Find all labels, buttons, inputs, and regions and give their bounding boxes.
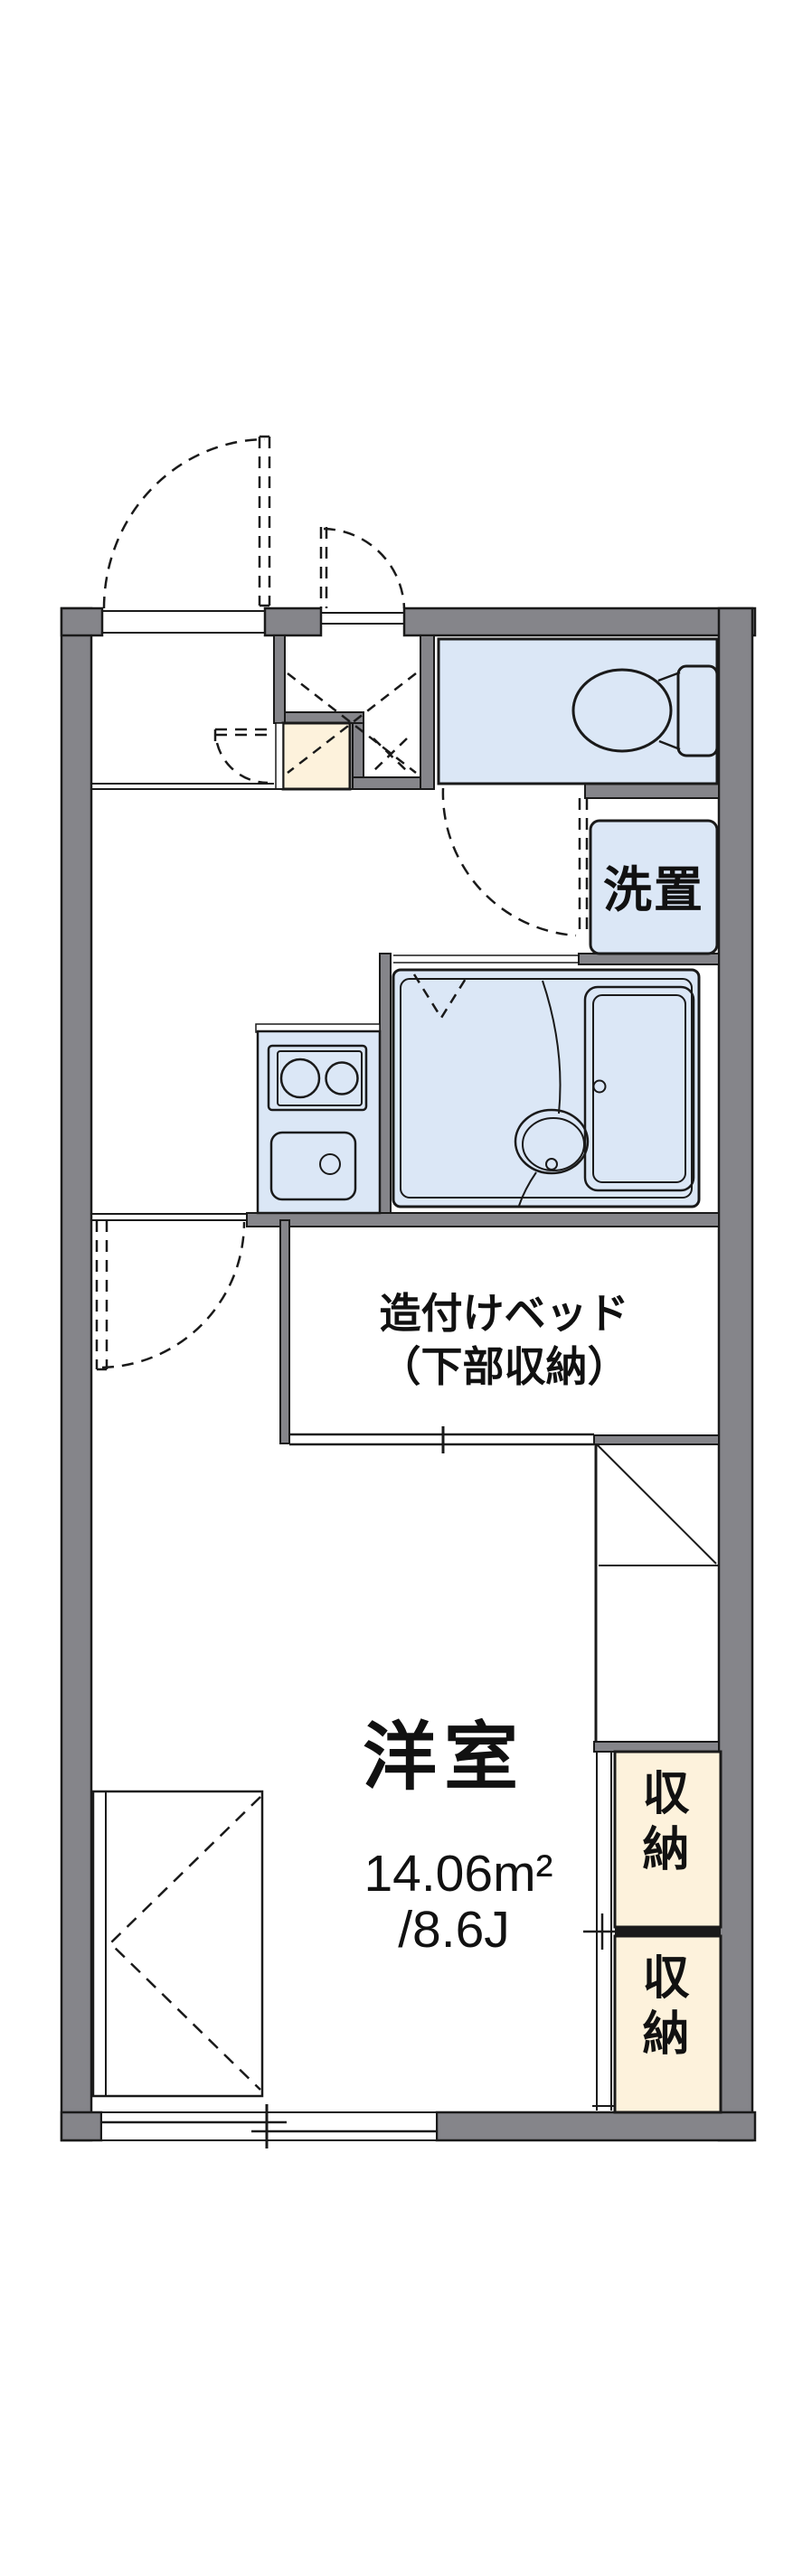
wall-top-left — [61, 608, 102, 635]
built-in-bed-label: 造付けベッド （下部収納） — [289, 1287, 719, 1394]
wall-under-laundry — [579, 954, 719, 964]
built-in-bed-label-line2: （下部収納） — [289, 1340, 719, 1394]
wall-right — [719, 608, 752, 2140]
fold-table-outline — [93, 1791, 262, 2096]
room-name-label: 洋室 — [308, 1710, 580, 1807]
wall-top-mid — [265, 608, 321, 635]
toilet-icon — [573, 670, 671, 751]
room-area-jo-label: /8.6J — [318, 1896, 590, 1963]
shoe-cabinet — [283, 723, 350, 789]
wall-bottom-right — [437, 2112, 755, 2140]
wall-ps-step — [285, 712, 364, 723]
wall-bottom-left — [61, 2112, 101, 2140]
wall-ps-left — [274, 635, 285, 723]
storage-lower-label: 収納 — [637, 1952, 695, 2124]
wall-bed-left — [280, 1220, 289, 1443]
kitchen-unit — [256, 1024, 380, 1213]
wall-bed-bottom-right — [594, 1435, 719, 1444]
floor-plan: 洗置 造付けベッド （下部収納） 洋室 14.06m² /8.6J 収納 収納 — [0, 0, 812, 2576]
shoe-cabinet-jamb — [276, 723, 283, 789]
storage-upper-label: 収納 — [637, 1768, 695, 1940]
wall-ps-right — [420, 635, 434, 789]
wall-toilet-bottom — [585, 784, 719, 798]
window-frame — [101, 2112, 437, 2140]
laundry-label: 洗置 — [587, 859, 721, 922]
wall-mid-horizontal — [247, 1213, 719, 1227]
wall-left — [61, 608, 91, 2140]
built-in-bed-label-line1: 造付けベッド — [289, 1287, 719, 1340]
fold-table-icon — [93, 1791, 262, 2096]
wall-kitchen-bath — [380, 954, 391, 1213]
wall-above-storage — [594, 1742, 719, 1752]
wall-top-right — [404, 608, 755, 635]
bathroom — [393, 970, 699, 1207]
